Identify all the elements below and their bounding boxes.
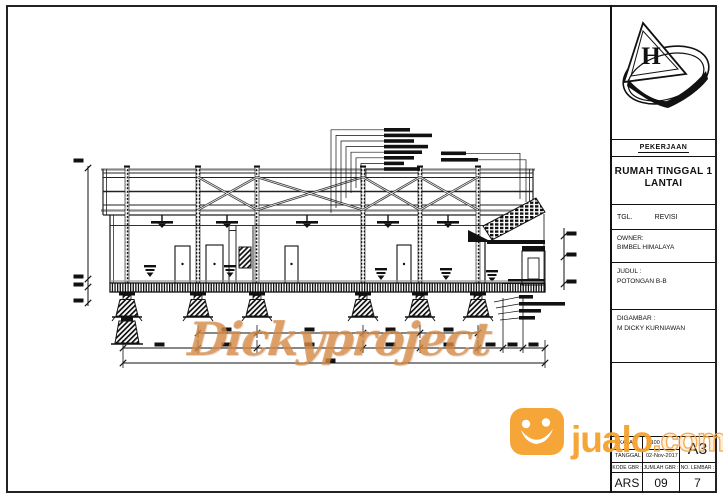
foundation-annotations	[494, 295, 565, 320]
kode-gbr-label: KODE GBR :	[612, 463, 643, 473]
owner-value: BIMBEL HIMALAYA	[617, 243, 715, 252]
ceiling-hanger	[296, 215, 318, 228]
digambar-section: DIGAMBAR : M DICKY KURNIAWAN	[612, 310, 715, 363]
sheet-number-table: KODE GBR : JUMLAH GBR : NO. LEMBAR : ARS…	[612, 463, 715, 493]
logo-graphic	[612, 5, 717, 138]
digambar-value: M DICKY KURNIAWAN	[617, 324, 715, 334]
ceiling-hanger	[216, 215, 238, 228]
ceiling	[110, 215, 485, 228]
judul-label: JUDUL :	[617, 267, 715, 277]
no-lembar-label: NO. LEMBAR :	[680, 463, 715, 473]
jualo-logo: jualo .com	[510, 408, 723, 455]
jualo-tld: .com	[652, 425, 723, 455]
owner-section: OWNER: BIMBEL HIMALAYA	[612, 230, 715, 263]
kode-gbr-value: ARS	[612, 473, 643, 493]
project-title-line2: LANTAI	[612, 178, 715, 190]
project-title-line1: RUMAH TINGGAL 1	[612, 166, 715, 178]
door	[285, 246, 298, 283]
watermark-text: Dickyproject	[186, 312, 492, 366]
dimension-line-left	[74, 159, 91, 306]
judul-section: JUDUL : POTONGAN B-B	[612, 263, 715, 310]
deep-foundation-left	[111, 317, 143, 344]
no-lembar-value: 7	[680, 473, 715, 493]
pekerjaan-header: PEKERJAAN	[612, 140, 715, 157]
floor-slab	[110, 281, 545, 292]
project-title: RUMAH TINGGAL 1 LANTAI	[612, 157, 715, 205]
ceiling-hanger	[437, 215, 459, 228]
mirror-partition	[229, 226, 253, 283]
logo-letter: H	[640, 43, 662, 71]
pekerjaan-label: PEKERJAAN	[638, 144, 690, 153]
jualo-wordmark: jualo	[571, 425, 652, 455]
jumlah-gbr-value: 09	[643, 473, 680, 493]
door	[206, 245, 223, 283]
tgl-label: TGL.	[617, 214, 633, 221]
door	[175, 246, 190, 283]
revision-row: TGL. REVISI	[612, 205, 715, 230]
judul-value: POTONGAN B-B	[617, 277, 715, 287]
owner-label: OWNER:	[617, 234, 715, 243]
ceiling-hanger	[151, 215, 173, 228]
dimension-line-right	[561, 228, 576, 290]
revisi-label: REVISI	[655, 214, 678, 221]
scanned-drawing-sheet: { "titleblock": { "logo_letter": "H", "p…	[0, 0, 723, 500]
company-logo: H	[612, 5, 715, 140]
jumlah-gbr-label: JUMLAH GBR :	[643, 463, 680, 473]
door	[397, 245, 411, 283]
digambar-label: DIGAMBAR :	[617, 314, 715, 324]
jualo-smiley-icon	[510, 408, 564, 455]
ceiling-hanger	[377, 215, 399, 228]
